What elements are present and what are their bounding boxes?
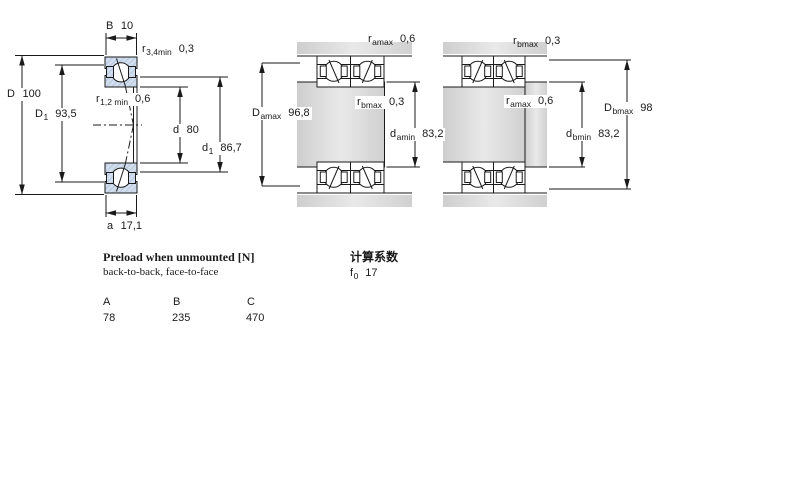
dim-label-r34min: r3,4min0,3 <box>142 43 194 56</box>
preload-col-A: A <box>103 296 110 309</box>
dim-label-D1: D193,5 <box>33 108 79 121</box>
dim-label-rbmax-b: rbmax0,3 <box>513 35 560 48</box>
dim-label-B: B10 <box>106 20 133 33</box>
preload-title: Preload when unmounted [N] <box>103 250 254 264</box>
cage <box>129 173 136 184</box>
dim-label-D: D100 <box>5 88 43 101</box>
dim-label-ramax-b: ramax0,6 <box>504 95 555 108</box>
dim-label-rbmax-a: rbmax0,3 <box>355 96 406 109</box>
housing-section <box>297 195 412 207</box>
bearing-section-top <box>105 57 137 87</box>
preload-col-C: C <box>247 296 255 309</box>
calc-factors-title: 计算系数 <box>350 250 398 264</box>
bearing-section-bottom <box>105 163 137 193</box>
cage <box>129 67 136 78</box>
bearing-pair-figure-a <box>262 42 420 207</box>
contact-axis-line <box>126 125 134 163</box>
dim-label-damin: damin83,2 <box>388 128 445 141</box>
bearing-pair-figure-b <box>443 42 631 207</box>
shaft-section <box>297 82 385 167</box>
housing-section <box>443 195 547 207</box>
dim-label-Dbmax: Dbmax98 <box>602 102 655 115</box>
dim-label-d: d80 <box>171 124 201 137</box>
factor-f0: f017 <box>350 267 378 280</box>
preload-val-A: 78 <box>103 312 115 325</box>
preload-val-B: 235 <box>172 312 190 325</box>
dim-label-Damax: Damax96,8 <box>250 107 312 120</box>
preload-subtitle: back-to-back, face-to-face <box>103 266 218 279</box>
dim-label-d1: d186,7 <box>200 142 244 155</box>
preload-val-C: 470 <box>246 312 264 325</box>
bearing-datasheet-figure: B10 r3,4min0,3 D100 D193,5 r1,2 min0,6 d… <box>0 0 800 500</box>
dim-label-ramax-a: ramax0,6 <box>368 33 415 46</box>
dim-label-r12min: r1,2 min0,6 <box>94 93 152 106</box>
preload-col-B: B <box>173 296 180 309</box>
cage <box>107 67 114 78</box>
dim-label-dbmin: dbmin83,2 <box>564 128 621 141</box>
cage <box>107 173 114 184</box>
dim-label-a: a17,1 <box>107 220 142 233</box>
